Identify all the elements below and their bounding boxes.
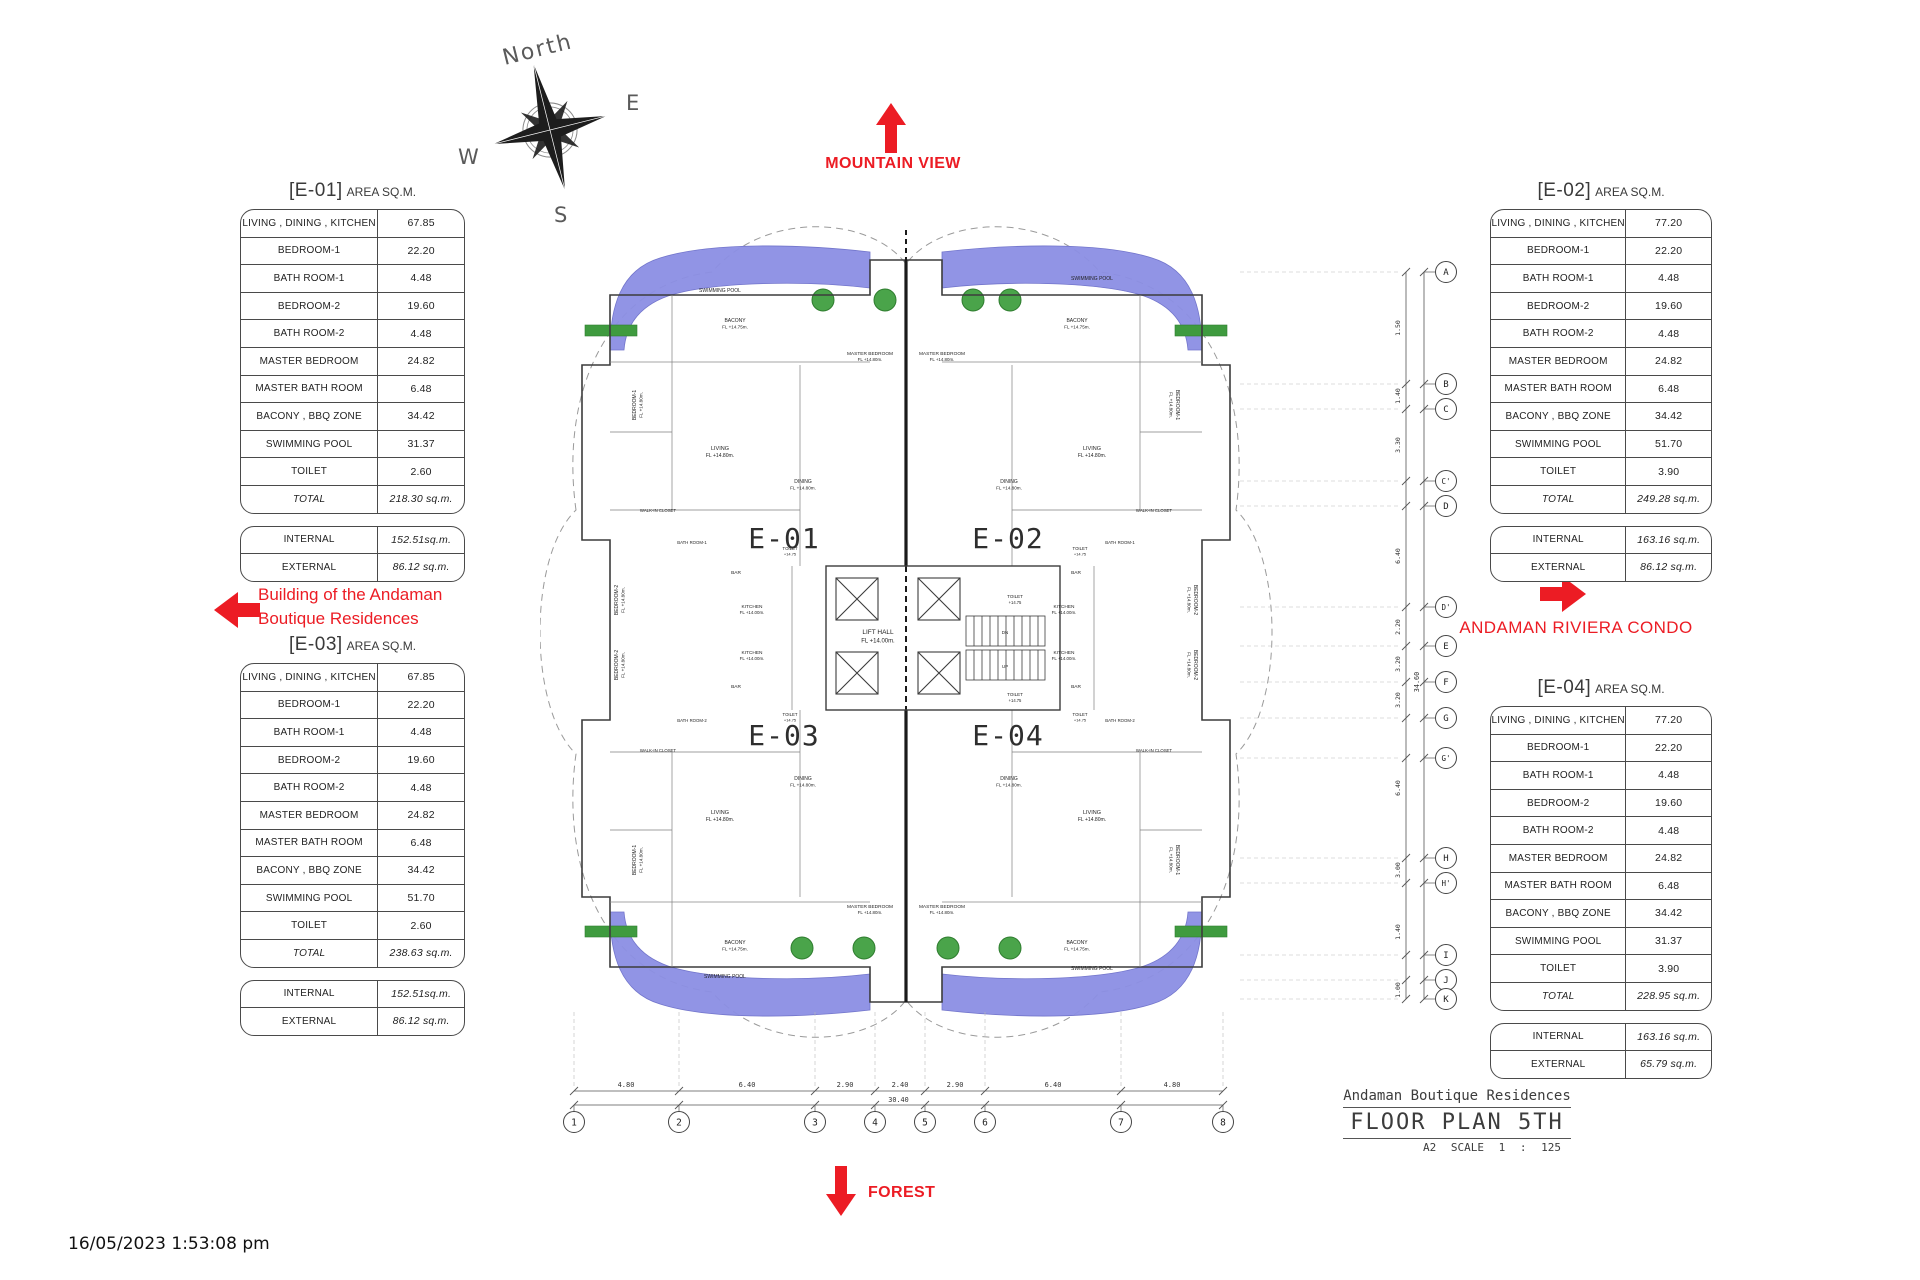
table-row: LIVING , DINING , KITCHEN77.20 bbox=[1491, 210, 1711, 237]
table-row: BACONY , BBQ ZONE34.42 bbox=[1491, 402, 1711, 430]
table-row: TOILET2.60 bbox=[241, 911, 464, 939]
compass-star bbox=[477, 50, 621, 204]
row-label: MASTER BATH ROOM bbox=[1491, 873, 1626, 900]
room-label: BEDROOM-2FL +14.80m. bbox=[614, 585, 626, 616]
row-value: 3.90 bbox=[1626, 458, 1711, 485]
table-row: BATH ROOM-24.48 bbox=[1491, 319, 1711, 347]
room-label: MASTER BEDROOMFL +14.80m. bbox=[847, 904, 893, 915]
row-value: 6.48 bbox=[1626, 376, 1711, 403]
room-label: BEDROOM-2FL +14.80m. bbox=[614, 650, 626, 681]
row-label: BACONY , BBQ ZONE bbox=[241, 403, 378, 430]
pool-bottom-right bbox=[942, 912, 1202, 1016]
row-value: 4.48 bbox=[378, 774, 464, 801]
room-label: BEDROOM-2FL +14.80m. bbox=[1187, 585, 1199, 616]
row-label: EXTERNAL bbox=[241, 1008, 378, 1035]
room-label: LIVINGFL +14.80m. bbox=[706, 446, 734, 459]
row-value: 4.48 bbox=[1626, 762, 1711, 789]
room-label: TOILET+14.75 bbox=[1007, 692, 1023, 703]
row-label: INTERNAL bbox=[1491, 1024, 1626, 1051]
row-value: 31.37 bbox=[1626, 928, 1711, 955]
area-table-e01-totals: INTERNAL152.51sq.m.EXTERNAL86.12 sq.m. bbox=[240, 526, 465, 582]
row-value: 77.20 bbox=[1626, 210, 1711, 237]
dimension-text: 2.20 bbox=[1394, 619, 1402, 635]
table-row: TOTAL218.30 sq.m. bbox=[241, 485, 464, 513]
table-row: BATH ROOM-24.48 bbox=[241, 319, 464, 347]
dimension-text: 1.50 bbox=[1394, 320, 1402, 336]
table-row: MASTER BATH ROOM6.48 bbox=[241, 375, 464, 403]
room-label: SWIMMING POOL bbox=[1071, 276, 1113, 282]
table-row: MASTER BATH ROOM6.48 bbox=[1491, 375, 1711, 403]
room-label: LIVINGFL +14.80m. bbox=[1078, 446, 1106, 459]
grid-bubble-label: E bbox=[1443, 642, 1448, 652]
building-note: Building of the Andaman Boutique Residen… bbox=[258, 583, 442, 631]
row-label: BEDROOM-1 bbox=[1491, 735, 1626, 762]
row-label: BATH ROOM-1 bbox=[241, 265, 378, 292]
dimension-text: 4.80 bbox=[618, 1081, 635, 1089]
table-row: BEDROOM-122.20 bbox=[241, 237, 464, 265]
room-label: KITCHENFL +14.00m. bbox=[1052, 650, 1077, 661]
room-label: DININGFL +14.80m. bbox=[790, 479, 816, 491]
row-value: 24.82 bbox=[1626, 348, 1711, 375]
table-row: BACONY , BBQ ZONE34.42 bbox=[1491, 899, 1711, 927]
table-row: INTERNAL152.51sq.m. bbox=[241, 527, 464, 554]
row-label: SWIMMING POOL bbox=[1491, 928, 1626, 955]
row-value: 152.51sq.m. bbox=[378, 527, 464, 554]
sheet-scale: A2 SCALE 1 : 125 bbox=[1343, 1139, 1571, 1154]
grid-bubble-label: 7 bbox=[1118, 1118, 1124, 1129]
row-label: EXTERNAL bbox=[1491, 1051, 1626, 1078]
row-label: BEDROOM-2 bbox=[241, 293, 378, 320]
table-row: EXTERNAL86.12 sq.m. bbox=[1491, 553, 1711, 581]
table-suffix: AREA SQ.M. bbox=[1595, 185, 1664, 199]
table-row: BATH ROOM-14.48 bbox=[1491, 761, 1711, 789]
stairs bbox=[966, 616, 1045, 680]
row-value: 4.48 bbox=[378, 265, 464, 292]
compass-east-label: E bbox=[626, 91, 639, 115]
room-label: TOILET+14.75 bbox=[1007, 594, 1023, 605]
grid-bubble-label: C bbox=[1443, 405, 1448, 415]
row-label: TOILET bbox=[1491, 955, 1626, 982]
row-label: BEDROOM-2 bbox=[1491, 790, 1626, 817]
room-label: BACONYFL +14.75m. bbox=[722, 940, 748, 952]
row-value: 249.28 sq.m. bbox=[1626, 486, 1711, 513]
area-table-e01-rows: LIVING , DINING , KITCHEN67.85BEDROOM-12… bbox=[240, 209, 465, 514]
table-row: TOILET3.90 bbox=[1491, 457, 1711, 485]
row-value: 86.12 sq.m. bbox=[378, 554, 464, 581]
room-label: SWIMMING POOL bbox=[704, 974, 746, 980]
row-label: EXTERNAL bbox=[1491, 554, 1626, 581]
table-row: MASTER BEDROOM24.82 bbox=[1491, 844, 1711, 872]
table-row: SWIMMING POOL31.37 bbox=[241, 430, 464, 458]
table-row: MASTER BEDROOM24.82 bbox=[241, 347, 464, 375]
row-value: 24.82 bbox=[378, 802, 464, 829]
forest-arrow-icon bbox=[826, 1166, 856, 1216]
grid-bubble-label: 2 bbox=[676, 1118, 682, 1129]
dimension-text: 1.00 bbox=[1394, 982, 1402, 998]
dimension-text: 2.90 bbox=[947, 1081, 964, 1089]
row-label: BATH ROOM-2 bbox=[241, 320, 378, 347]
bottom-dimension-grid: 123456784.806.402.902.402.906.404.8030.4… bbox=[564, 1012, 1234, 1133]
room-label: BATH ROOM-1 bbox=[1105, 540, 1135, 545]
row-label: MASTER BATH ROOM bbox=[241, 830, 378, 857]
row-value: 4.48 bbox=[1626, 265, 1711, 292]
unit-label: E-04 bbox=[972, 719, 1043, 752]
row-label: BATH ROOM-2 bbox=[241, 774, 378, 801]
row-value: 34.42 bbox=[1626, 900, 1711, 927]
row-label: MASTER BEDROOM bbox=[241, 802, 378, 829]
area-table-e01: [E-01]AREA SQ.M. LIVING , DINING , KITCH… bbox=[240, 180, 465, 582]
table-row: BEDROOM-219.60 bbox=[241, 746, 464, 774]
dimension-text: 3.20 bbox=[1394, 692, 1402, 708]
row-value: 228.95 sq.m. bbox=[1626, 983, 1711, 1010]
room-label: BACONYFL +14.75m. bbox=[722, 318, 748, 330]
row-value: 24.82 bbox=[1626, 845, 1711, 872]
row-label: MASTER BEDROOM bbox=[241, 348, 378, 375]
unit-label: E-03 bbox=[748, 719, 819, 752]
table-row: EXTERNAL65.79 sq.m. bbox=[1491, 1050, 1711, 1078]
room-label: MASTER BEDROOMFL +14.80m. bbox=[847, 351, 893, 362]
table-row: BACONY , BBQ ZONE34.42 bbox=[241, 402, 464, 430]
row-label: TOILET bbox=[241, 458, 378, 485]
room-label: DININGFL +14.80m. bbox=[996, 776, 1022, 788]
row-value: 218.30 sq.m. bbox=[378, 486, 464, 513]
mountain-view-arrow-icon bbox=[876, 103, 906, 153]
grid-bubble-label: F bbox=[1443, 678, 1448, 688]
grid-bubble-label: C' bbox=[1441, 477, 1450, 486]
grid-bubble-label: G' bbox=[1441, 754, 1450, 763]
row-label: BEDROOM-2 bbox=[1491, 293, 1626, 320]
grid-bubble-label: 4 bbox=[872, 1118, 878, 1129]
pool-bottom-left bbox=[610, 912, 870, 1016]
table-row: SWIMMING POOL51.70 bbox=[1491, 430, 1711, 458]
room-label: DININGFL +14.80m. bbox=[790, 776, 816, 788]
table-row: MASTER BEDROOM24.82 bbox=[1491, 347, 1711, 375]
table-row: BEDROOM-219.60 bbox=[1491, 789, 1711, 817]
table-row: TOTAL228.95 sq.m. bbox=[1491, 982, 1711, 1010]
table-row: LIVING , DINING , KITCHEN67.85 bbox=[241, 210, 464, 237]
row-label: LIVING , DINING , KITCHEN bbox=[241, 210, 378, 237]
row-label: SWIMMING POOL bbox=[241, 431, 378, 458]
area-table-e04-rows: LIVING , DINING , KITCHEN77.20BEDROOM-12… bbox=[1490, 706, 1712, 1011]
table-row: INTERNAL163.16 sq.m. bbox=[1491, 527, 1711, 554]
room-label: MASTER BEDROOMFL +14.80m. bbox=[919, 351, 965, 362]
room-label: BAR bbox=[731, 684, 741, 690]
table-row: SWIMMING POOL51.70 bbox=[241, 884, 464, 912]
row-value: 2.60 bbox=[378, 458, 464, 485]
row-value: 19.60 bbox=[378, 293, 464, 320]
row-value: 34.42 bbox=[378, 857, 464, 884]
row-label: TOTAL bbox=[241, 940, 378, 967]
table-code: [E-02] bbox=[1537, 180, 1591, 201]
dimension-text: 2.40 bbox=[892, 1081, 909, 1089]
row-value: 19.60 bbox=[1626, 293, 1711, 320]
row-label: LIVING , DINING , KITCHEN bbox=[1491, 210, 1626, 237]
dimension-text: 6.40 bbox=[739, 1081, 756, 1089]
row-value: 34.42 bbox=[1626, 403, 1711, 430]
row-value: 6.48 bbox=[1626, 873, 1711, 900]
row-label: TOTAL bbox=[241, 486, 378, 513]
unit-label: E-01 bbox=[748, 522, 819, 555]
dimension-text: 6.40 bbox=[1045, 1081, 1062, 1089]
row-value: 86.12 sq.m. bbox=[378, 1008, 464, 1035]
room-label: WALK-IN CLOSET bbox=[1136, 748, 1173, 753]
row-value: 22.20 bbox=[378, 238, 464, 265]
table-row: INTERNAL152.51sq.m. bbox=[241, 981, 464, 1008]
room-label: DN bbox=[1002, 630, 1009, 635]
title-block: Andaman Boutique Residences FLOOR PLAN 5… bbox=[1343, 1088, 1571, 1154]
room-label: BACONYFL +14.75m. bbox=[1064, 940, 1090, 952]
row-label: MASTER BATH ROOM bbox=[241, 376, 378, 403]
room-label: WALK-IN CLOSET bbox=[1136, 508, 1173, 513]
row-label: EXTERNAL bbox=[241, 554, 378, 581]
area-table-e04: [E-04]AREA SQ.M. LIVING , DINING , KITCH… bbox=[1490, 677, 1712, 1079]
room-label: BEDROOM-1FL +14.80m. bbox=[1169, 390, 1181, 421]
dimension-total: 34.60 bbox=[1413, 672, 1421, 692]
room-label: BEDROOM-2FL +14.80m. bbox=[1187, 650, 1199, 681]
row-label: LIVING , DINING , KITCHEN bbox=[241, 664, 378, 691]
row-value: 65.79 sq.m. bbox=[1626, 1051, 1711, 1078]
row-value: 22.20 bbox=[1626, 735, 1711, 762]
row-label: BATH ROOM-1 bbox=[241, 719, 378, 746]
table-row: MASTER BATH ROOM6.48 bbox=[241, 829, 464, 857]
row-value: 4.48 bbox=[1626, 817, 1711, 844]
table-suffix: AREA SQ.M. bbox=[1595, 682, 1664, 696]
row-value: 6.48 bbox=[378, 830, 464, 857]
row-label: TOILET bbox=[1491, 458, 1626, 485]
row-label: MASTER BEDROOM bbox=[1491, 348, 1626, 375]
table-row: BATH ROOM-14.48 bbox=[1491, 264, 1711, 292]
room-label: BEDROOM-1FL +14.80m. bbox=[632, 390, 644, 421]
dimension-text: 3.30 bbox=[1394, 437, 1402, 453]
table-row: BEDROOM-219.60 bbox=[241, 292, 464, 320]
row-label: TOTAL bbox=[1491, 983, 1626, 1010]
dimension-text: 1.40 bbox=[1394, 924, 1402, 940]
dimension-text: 3.00 bbox=[1394, 862, 1402, 878]
table-row: LIVING , DINING , KITCHEN67.85 bbox=[241, 664, 464, 691]
dimension-text: 6.40 bbox=[1394, 548, 1402, 564]
row-value: 19.60 bbox=[1626, 790, 1711, 817]
dimension-text: 4.80 bbox=[1164, 1081, 1181, 1089]
row-value: 2.60 bbox=[378, 912, 464, 939]
row-value: 24.82 bbox=[378, 348, 464, 375]
room-label: BACONYFL +14.75m. bbox=[1064, 318, 1090, 330]
room-label: LIFT HALLFL +14.00m. bbox=[861, 629, 895, 644]
row-label: MASTER BATH ROOM bbox=[1491, 376, 1626, 403]
timestamp: 16/05/2023 1:53:08 pm bbox=[68, 1234, 270, 1254]
compass-west-label: W bbox=[458, 145, 479, 169]
room-label: WALK-IN CLOSET bbox=[640, 748, 677, 753]
row-value: 238.63 sq.m. bbox=[378, 940, 464, 967]
dimension-text: 6.40 bbox=[1394, 780, 1402, 796]
room-label: TOILET+14.75 bbox=[1073, 712, 1088, 723]
grid-bubble-label: D bbox=[1443, 502, 1448, 512]
room-label: KITCHENFL +14.00m. bbox=[1052, 604, 1077, 615]
room-label: KITCHENFL +14.00m. bbox=[740, 604, 765, 615]
table-suffix: AREA SQ.M. bbox=[347, 639, 416, 653]
grid-bubble-label: 5 bbox=[922, 1118, 928, 1129]
row-value: 4.48 bbox=[378, 320, 464, 347]
table-row: BATH ROOM-14.48 bbox=[241, 718, 464, 746]
table-row: TOTAL249.28 sq.m. bbox=[1491, 485, 1711, 513]
grid-bubble-label: B bbox=[1443, 380, 1448, 390]
row-label: LIVING , DINING , KITCHEN bbox=[1491, 707, 1626, 734]
row-value: 51.70 bbox=[1626, 431, 1711, 458]
compass-north-label: North bbox=[500, 29, 575, 71]
row-value: 3.90 bbox=[1626, 955, 1711, 982]
room-label: WALK-IN CLOSET bbox=[640, 508, 677, 513]
room-label: MASTER BEDROOMFL +14.80m. bbox=[919, 904, 965, 915]
grid-bubble-label: H bbox=[1443, 854, 1448, 864]
area-table-e03: [E-03]AREA SQ.M. LIVING , DINING , KITCH… bbox=[240, 634, 465, 1036]
room-label: DININGFL +14.80m. bbox=[996, 479, 1022, 491]
room-label: BATH ROOM-1 bbox=[677, 540, 707, 545]
grid-bubble-label: 6 bbox=[982, 1118, 988, 1129]
project-name: Andaman Boutique Residences bbox=[1343, 1088, 1571, 1107]
area-table-e02-totals: INTERNAL163.16 sq.m.EXTERNAL86.12 sq.m. bbox=[1490, 526, 1712, 582]
row-label: TOILET bbox=[241, 912, 378, 939]
row-label: MASTER BEDROOM bbox=[1491, 845, 1626, 872]
table-code: [E-01] bbox=[289, 180, 343, 201]
room-label: BAR bbox=[1071, 570, 1081, 576]
row-label: BEDROOM-1 bbox=[241, 692, 378, 719]
table-row: BEDROOM-122.20 bbox=[1491, 734, 1711, 762]
mountain-view-label: MOUNTAIN VIEW bbox=[808, 155, 978, 173]
table-code: [E-04] bbox=[1537, 677, 1591, 698]
table-row: SWIMMING POOL31.37 bbox=[1491, 927, 1711, 955]
building-note-line2: Boutique Residences bbox=[258, 607, 442, 631]
row-label: BACONY , BBQ ZONE bbox=[241, 857, 378, 884]
building-note-line1: Building of the Andaman bbox=[258, 583, 442, 607]
row-value: 67.85 bbox=[378, 210, 464, 237]
dimension-text: 3.20 bbox=[1394, 656, 1402, 672]
grid-bubble-label: G bbox=[1443, 714, 1448, 724]
lift-shafts bbox=[836, 578, 960, 694]
row-label: TOTAL bbox=[1491, 486, 1626, 513]
row-value: 163.16 sq.m. bbox=[1626, 527, 1711, 554]
grid-bubble-label: A bbox=[1443, 268, 1449, 278]
room-label: TOILET+14.75 bbox=[1073, 546, 1088, 557]
grid-bubble-label: H' bbox=[1441, 879, 1450, 888]
room-label: BAR bbox=[731, 570, 741, 576]
row-value: 4.48 bbox=[378, 719, 464, 746]
grid-bubble-label: 8 bbox=[1220, 1118, 1226, 1129]
table-row: TOILET3.90 bbox=[1491, 954, 1711, 982]
room-label: SWIMMING POOL bbox=[1071, 966, 1113, 972]
table-row: LIVING , DINING , KITCHEN77.20 bbox=[1491, 707, 1711, 734]
table-row: MASTER BEDROOM24.82 bbox=[241, 801, 464, 829]
dimension-text: 2.90 bbox=[837, 1081, 854, 1089]
forest-label: FOREST bbox=[868, 1184, 935, 1202]
room-label: UP bbox=[1002, 664, 1008, 669]
row-label: INTERNAL bbox=[241, 527, 378, 554]
room-label: LIVINGFL +14.80m. bbox=[1078, 810, 1106, 823]
dimension-total: 30.40 bbox=[888, 1096, 908, 1104]
building-note-arrow-icon bbox=[214, 592, 260, 628]
area-table-e04-totals: INTERNAL163.16 sq.m.EXTERNAL65.79 sq.m. bbox=[1490, 1023, 1712, 1079]
row-value: 34.42 bbox=[378, 403, 464, 430]
area-table-e01-title: [E-01]AREA SQ.M. bbox=[240, 180, 465, 202]
table-row: EXTERNAL86.12 sq.m. bbox=[241, 1007, 464, 1035]
area-table-e04-title: [E-04]AREA SQ.M. bbox=[1490, 677, 1712, 699]
row-value: 19.60 bbox=[378, 747, 464, 774]
row-value: 163.16 sq.m. bbox=[1626, 1024, 1711, 1051]
room-label: BEDROOM-1FL +14.80m. bbox=[632, 845, 644, 876]
row-label: SWIMMING POOL bbox=[1491, 431, 1626, 458]
grid-bubble-label: J bbox=[1443, 976, 1448, 986]
table-row: TOTAL238.63 sq.m. bbox=[241, 939, 464, 967]
area-table-e02: [E-02]AREA SQ.M. LIVING , DINING , KITCH… bbox=[1490, 180, 1712, 582]
row-value: 51.70 bbox=[378, 885, 464, 912]
row-value: 4.48 bbox=[1626, 320, 1711, 347]
table-row: TOILET2.60 bbox=[241, 457, 464, 485]
area-table-e02-rows: LIVING , DINING , KITCHEN77.20BEDROOM-12… bbox=[1490, 209, 1712, 514]
area-table-e03-totals: INTERNAL152.51sq.m.EXTERNAL86.12 sq.m. bbox=[240, 980, 465, 1036]
room-label: BAR bbox=[1071, 684, 1081, 690]
table-row: BATH ROOM-24.48 bbox=[241, 773, 464, 801]
row-label: BEDROOM-2 bbox=[241, 747, 378, 774]
row-value: 31.37 bbox=[378, 431, 464, 458]
row-value: 22.20 bbox=[1626, 238, 1711, 265]
dimension-text: 1.40 bbox=[1394, 388, 1402, 404]
row-value: 6.48 bbox=[378, 376, 464, 403]
table-row: MASTER BATH ROOM6.48 bbox=[1491, 872, 1711, 900]
row-value: 86.12 sq.m. bbox=[1626, 554, 1711, 581]
room-label: BATH ROOM-2 bbox=[1105, 718, 1135, 723]
row-value: 22.20 bbox=[378, 692, 464, 719]
unit-label: E-02 bbox=[972, 522, 1043, 555]
area-table-e02-title: [E-02]AREA SQ.M. bbox=[1490, 180, 1712, 202]
row-label: BATH ROOM-1 bbox=[1491, 265, 1626, 292]
row-label: BEDROOM-1 bbox=[1491, 238, 1626, 265]
sheet-title: FLOOR PLAN 5TH bbox=[1343, 1108, 1571, 1138]
room-label: SWIMMING POOL bbox=[699, 288, 741, 294]
table-row: BEDROOM-122.20 bbox=[241, 691, 464, 719]
row-value: 77.20 bbox=[1626, 707, 1711, 734]
area-table-e03-title: [E-03]AREA SQ.M. bbox=[240, 634, 465, 656]
grid-bubble-label: 1 bbox=[571, 1118, 577, 1129]
row-value: 67.85 bbox=[378, 664, 464, 691]
grid-bubble-label: D' bbox=[1441, 603, 1450, 612]
table-row: BATH ROOM-14.48 bbox=[241, 264, 464, 292]
table-row: BACONY , BBQ ZONE34.42 bbox=[241, 856, 464, 884]
table-code: [E-03] bbox=[289, 634, 343, 655]
table-row: INTERNAL163.16 sq.m. bbox=[1491, 1024, 1711, 1051]
table-row: EXTERNAL86.12 sq.m. bbox=[241, 553, 464, 581]
grid-bubble-label: K bbox=[1443, 995, 1449, 1005]
row-label: BACONY , BBQ ZONE bbox=[1491, 403, 1626, 430]
row-label: BATH ROOM-2 bbox=[1491, 817, 1626, 844]
room-label: KITCHENFL +14.00m. bbox=[740, 650, 765, 661]
grid-bubble-label: 3 bbox=[812, 1118, 818, 1129]
room-label: LIVINGFL +14.80m. bbox=[706, 810, 734, 823]
table-row: BATH ROOM-24.48 bbox=[1491, 816, 1711, 844]
row-label: SWIMMING POOL bbox=[241, 885, 378, 912]
table-row: BEDROOM-219.60 bbox=[1491, 292, 1711, 320]
row-value: 152.51sq.m. bbox=[378, 981, 464, 1008]
row-label: BACONY , BBQ ZONE bbox=[1491, 900, 1626, 927]
floorplan-sheet: { "page": {"timestamp": "16/05/2023 1:53… bbox=[0, 0, 1920, 1280]
room-label: BATH ROOM-2 bbox=[677, 718, 707, 723]
row-label: INTERNAL bbox=[1491, 527, 1626, 554]
room-label: BEDROOM-1FL +14.80m. bbox=[1169, 845, 1181, 876]
table-suffix: AREA SQ.M. bbox=[347, 185, 416, 199]
floor-plan-drawing: SWIMMING POOLSWIMMING POOLSWIMMING POOLS… bbox=[540, 200, 1500, 1150]
table-row: BEDROOM-122.20 bbox=[1491, 237, 1711, 265]
area-table-e03-rows: LIVING , DINING , KITCHEN67.85BEDROOM-12… bbox=[240, 663, 465, 968]
row-label: BATH ROOM-1 bbox=[1491, 762, 1626, 789]
row-label: BEDROOM-1 bbox=[241, 238, 378, 265]
grid-bubble-label: I bbox=[1443, 951, 1448, 961]
